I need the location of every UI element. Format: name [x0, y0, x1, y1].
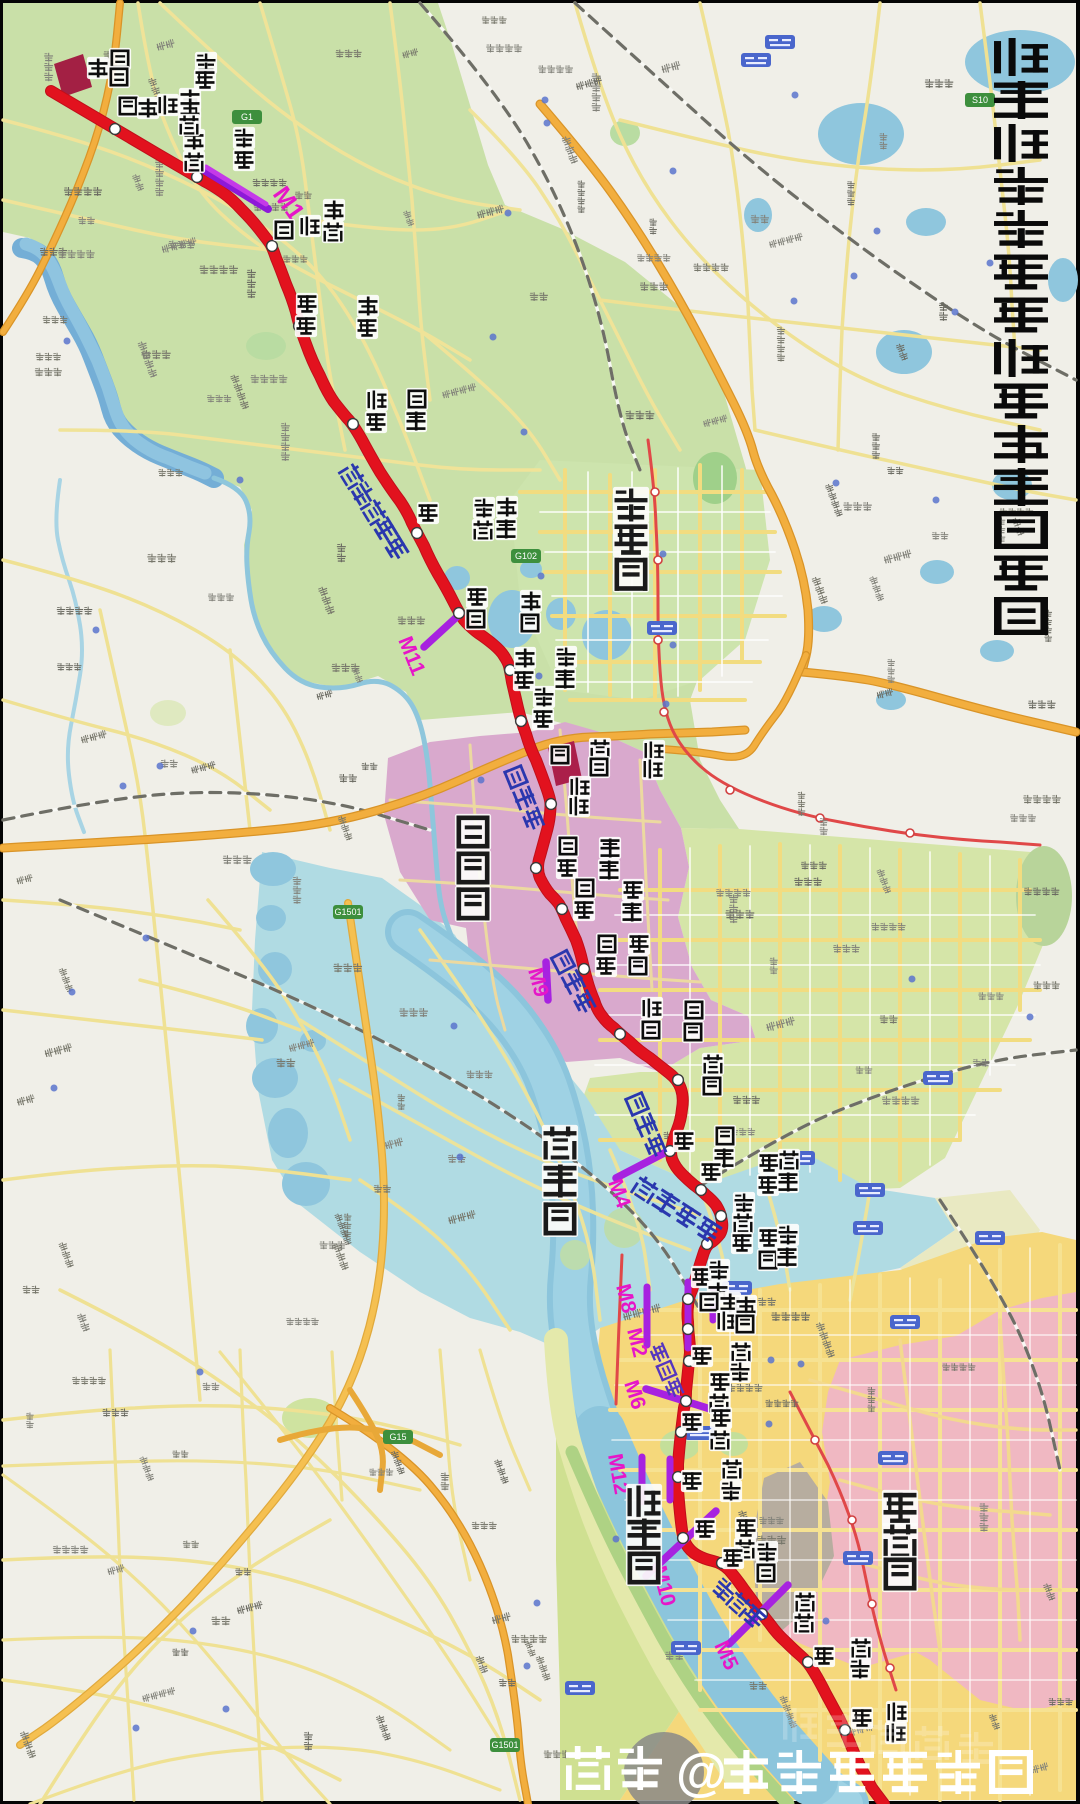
svg-text:G1: G1 [241, 112, 253, 122]
svg-text:G15: G15 [389, 1432, 406, 1442]
svg-text:G102: G102 [515, 551, 537, 561]
svg-text:G1501: G1501 [334, 907, 361, 917]
svg-text:@: @ [676, 1744, 727, 1802]
svg-text:G1501: G1501 [491, 1740, 518, 1750]
svg-text:S10: S10 [972, 95, 988, 105]
